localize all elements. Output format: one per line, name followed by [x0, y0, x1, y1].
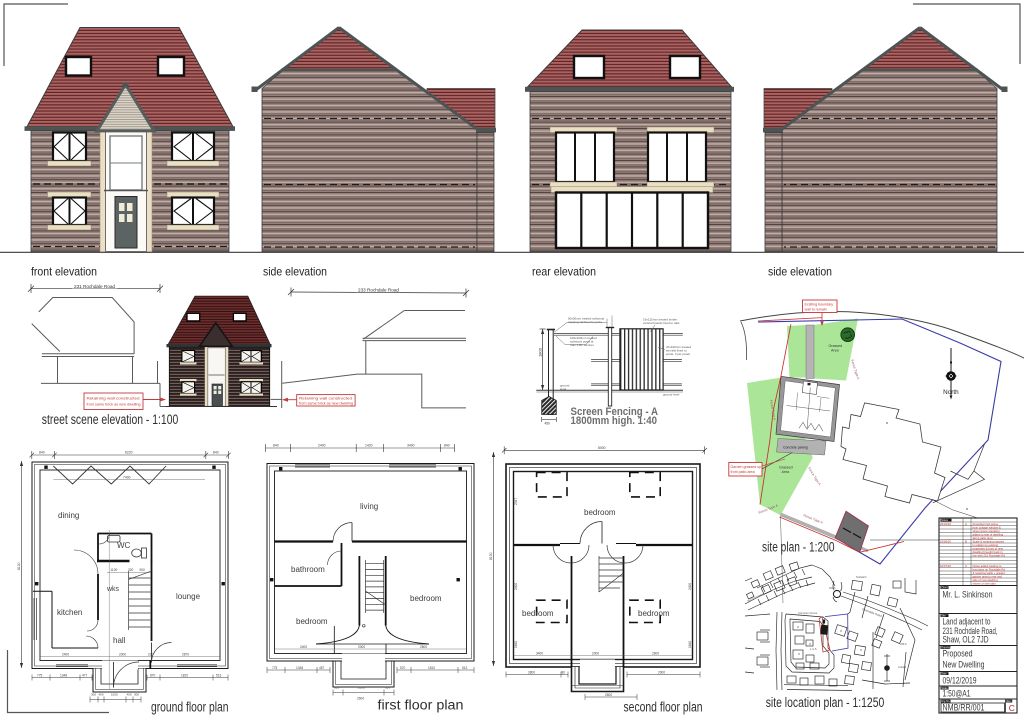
svg-text:Retaining wall constructed: Retaining wall constructed: [87, 396, 140, 401]
svg-text:2347: 2347: [514, 498, 518, 505]
svg-text:2400: 2400: [514, 583, 518, 590]
svg-text:wall to remain: wall to remain: [805, 308, 827, 312]
svg-text:first floor plan: first floor plan: [378, 698, 464, 713]
svg-text:Proposed: Proposed: [943, 649, 973, 659]
svg-text:bedroom: bedroom: [410, 594, 442, 603]
svg-text:2800: 2800: [528, 670, 535, 674]
svg-text:C: C: [1009, 703, 1015, 713]
svg-text:Area: Area: [782, 470, 790, 474]
svg-text:775: 775: [37, 673, 43, 677]
svg-text:A: A: [965, 522, 967, 526]
svg-text:New Dwelling: New Dwelling: [943, 660, 985, 670]
svg-text:living: living: [360, 502, 378, 511]
svg-text:775: 775: [272, 666, 278, 670]
svg-text:231 Rochdale Road: 231 Rochdale Road: [74, 284, 115, 290]
svg-text:1100: 1100: [110, 568, 117, 572]
svg-text:bedroom: bedroom: [522, 609, 554, 618]
svg-text:Existing boundary: Existing boundary: [805, 303, 834, 307]
svg-text:line with 231 Rochdale Rd: line with 231 Rochdale Rd: [973, 554, 1006, 558]
svg-text:300: 300: [334, 686, 339, 690]
svg-text:300: 300: [134, 693, 139, 697]
svg-text:vertical boards fixed to rails: vertical boards fixed to rails: [643, 321, 680, 325]
svg-text:1348: 1348: [296, 666, 303, 670]
svg-text:80: 80: [562, 670, 566, 674]
svg-text:bedroom: bedroom: [638, 609, 670, 618]
svg-text:WC: WC: [117, 541, 131, 550]
svg-text:1420: 1420: [365, 444, 373, 448]
svg-text:246.9: 246.9: [900, 642, 907, 646]
svg-text:8130: 8130: [489, 552, 493, 560]
svg-text:North: North: [943, 390, 959, 396]
svg-text:Nuthatch: Nuthatch: [856, 575, 867, 579]
svg-text:840: 840: [273, 444, 279, 448]
svg-text:840: 840: [39, 451, 45, 455]
svg-text:1 to 5: 1 to 5: [810, 647, 817, 651]
svg-text:bathroom: bathroom: [291, 565, 325, 574]
svg-text:2000: 2000: [358, 686, 365, 690]
svg-text:400: 400: [99, 693, 104, 697]
svg-text:wks: wks: [106, 586, 120, 593]
svg-text:Grassed: Grassed: [829, 344, 843, 348]
svg-text:400: 400: [127, 693, 132, 697]
svg-text:870: 870: [150, 673, 156, 677]
svg-text:233 Rochdale Road: 233 Rochdale Road: [358, 288, 399, 294]
svg-text:29/04/20: 29/04/20: [940, 522, 951, 526]
svg-text:Area: Area: [831, 349, 839, 353]
svg-text:1810: 1810: [181, 673, 188, 677]
svg-text:513: 513: [216, 673, 222, 677]
svg-text:Grassed: Grassed: [779, 466, 793, 470]
svg-text:2870: 2870: [182, 652, 189, 656]
svg-text:second floor plan: second floor plan: [624, 700, 703, 715]
svg-text:8000: 8000: [598, 446, 606, 450]
svg-text:900: 900: [140, 568, 146, 572]
svg-text:1640: 1640: [688, 641, 692, 648]
svg-text:front elevation: front elevation: [31, 265, 97, 279]
svg-text:site plan - 1:200: site plan - 1:200: [762, 540, 835, 555]
svg-text:street scene elevation - 1:100: street scene elevation - 1:100: [42, 412, 179, 427]
svg-text:220: 220: [148, 652, 154, 656]
svg-text:09/12/2019: 09/12/2019: [943, 676, 977, 686]
svg-text:dining: dining: [58, 511, 79, 520]
svg-text:2600: 2600: [605, 693, 612, 697]
svg-text:level: level: [560, 387, 567, 391]
svg-text:bedroom: bedroom: [296, 617, 328, 626]
svg-text:1810: 1810: [428, 666, 435, 670]
svg-text:3400: 3400: [536, 651, 543, 655]
svg-text:2400: 2400: [318, 444, 326, 448]
svg-text:2800: 2800: [420, 645, 427, 649]
svg-text:300: 300: [91, 693, 96, 697]
svg-text:Crompton Grove: Crompton Grove: [798, 611, 818, 615]
svg-text:from same brick as new dwellin: from same brick as new dwelling: [299, 400, 353, 405]
svg-text:Garden grassed up: Garden grassed up: [731, 465, 762, 469]
svg-text:Linfield: Linfield: [898, 665, 907, 669]
svg-text:457: 457: [319, 666, 325, 670]
svg-text:posts, 3 per panel: posts, 3 per panel: [666, 352, 690, 356]
svg-text:capping rail fixed to posts: capping rail fixed to posts: [568, 320, 602, 324]
svg-text:2000: 2000: [358, 645, 365, 649]
svg-text:1020: 1020: [111, 693, 118, 697]
svg-text:1348: 1348: [60, 673, 67, 677]
svg-text:253.6: 253.6: [829, 586, 836, 590]
svg-text:3400: 3400: [407, 444, 415, 448]
svg-text:site location plan - 1:1250: site location plan - 1:1250: [766, 695, 885, 710]
svg-text:10/07/20: 10/07/20: [940, 564, 951, 568]
svg-text:7400: 7400: [123, 476, 131, 480]
svg-text:ground level: ground level: [663, 393, 680, 397]
svg-text:1640: 1640: [514, 641, 518, 648]
svg-text:2400: 2400: [300, 645, 307, 649]
svg-text:840: 840: [213, 451, 219, 455]
svg-text:2400: 2400: [688, 583, 692, 590]
svg-text:8130: 8130: [17, 562, 21, 570]
svg-text:2600: 2600: [652, 651, 659, 655]
svg-text:1800: 1800: [539, 348, 543, 357]
svg-text:1:50@A1: 1:50@A1: [943, 689, 971, 699]
svg-text:2000: 2000: [592, 651, 599, 655]
svg-text:Mr. L. Sinkinson: Mr. L. Sinkinson: [943, 590, 993, 600]
svg-text:570: 570: [400, 666, 406, 670]
svg-text:kitchen: kitchen: [57, 608, 82, 617]
svg-text:B: B: [965, 540, 967, 544]
svg-text:Shaw, OL2 7JD: Shaw, OL2 7JD: [943, 635, 989, 645]
svg-text:rear elevation: rear elevation: [532, 265, 596, 279]
svg-text:477: 477: [82, 673, 88, 677]
svg-text:19/06/20: 19/06/20: [940, 540, 951, 544]
svg-text:2000: 2000: [119, 652, 126, 656]
svg-text:from same brick as new dwellin: from same brick as new dwelling: [87, 402, 141, 407]
svg-text:side elevation: side elevation: [263, 265, 327, 279]
svg-text:max 1.8m centres: max 1.8m centres: [570, 343, 594, 347]
svg-text:bedroom: bedroom: [584, 508, 616, 517]
svg-text:2900: 2900: [658, 670, 665, 674]
svg-text:6220: 6220: [125, 451, 133, 455]
svg-text:450: 450: [545, 422, 551, 426]
svg-text:1800mm high. 1:40: 1800mm high. 1:40: [571, 415, 658, 427]
svg-text:320: 320: [128, 568, 134, 572]
svg-text:NMB/RR/001: NMB/RR/001: [943, 703, 985, 713]
svg-text:513: 513: [462, 666, 468, 670]
svg-text:300: 300: [385, 686, 390, 690]
svg-text:2600: 2600: [357, 697, 364, 701]
svg-text:C: C: [965, 564, 967, 568]
svg-text:Concrete paving: Concrete paving: [783, 446, 808, 450]
svg-text:hall: hall: [113, 636, 126, 645]
svg-text:lounge: lounge: [176, 592, 201, 601]
svg-text:2400: 2400: [62, 652, 69, 656]
svg-text:from patio area: from patio area: [731, 470, 755, 474]
svg-text:side elevation: side elevation: [768, 265, 832, 279]
svg-text:840: 840: [444, 444, 450, 448]
svg-text:ground floor plan: ground floor plan: [151, 700, 229, 715]
